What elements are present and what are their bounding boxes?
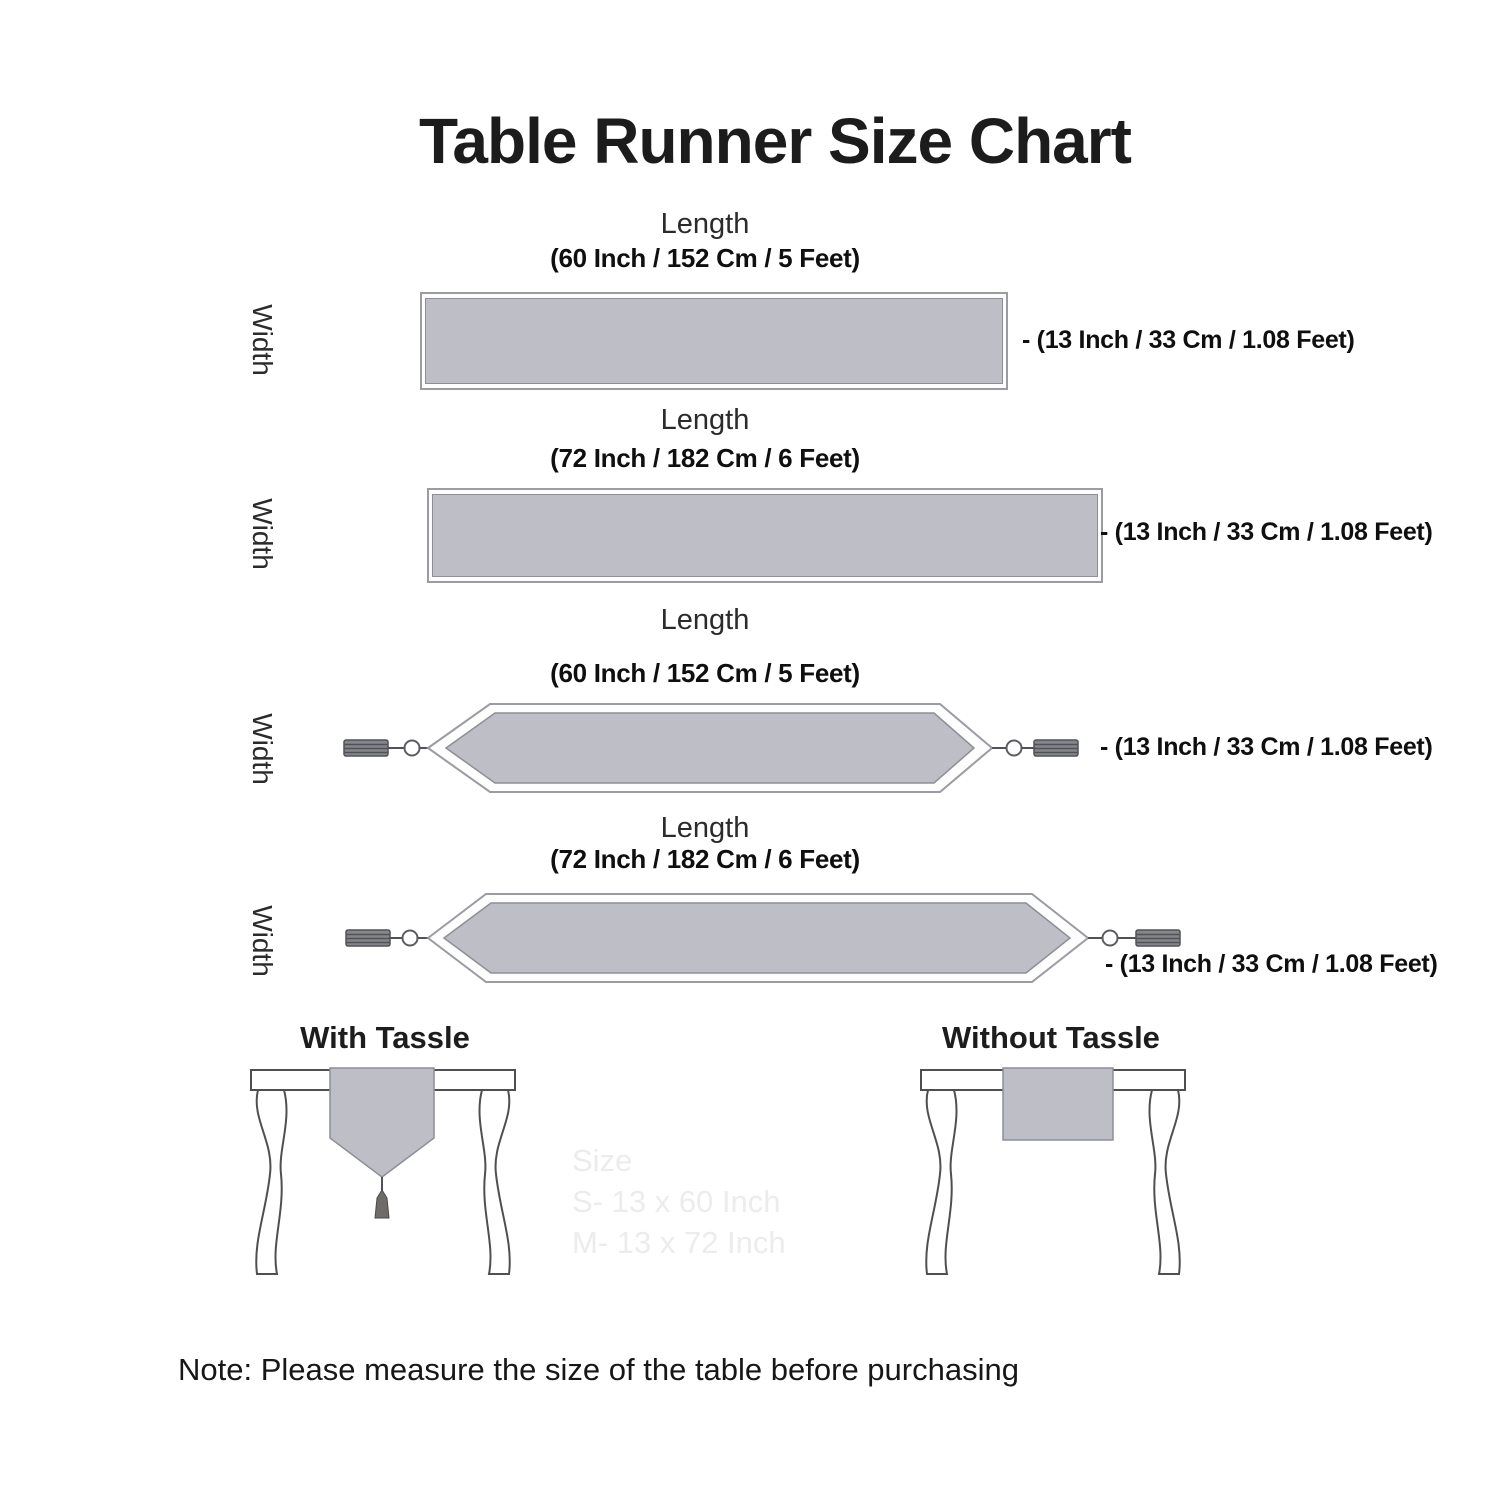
- table-runner-size-chart: Table Runner Size Chart Length (60 Inch …: [0, 0, 1500, 1500]
- runner-4-width-size: - (13 Inch / 33 Cm / 1.08 Feet): [1105, 950, 1438, 979]
- straight-runner: [1003, 1068, 1113, 1140]
- table-leg: [479, 1090, 509, 1274]
- runner-1-diagram: [420, 292, 1008, 390]
- runner-4-length-label: Length: [355, 812, 1055, 845]
- watermark-text: Size S- 13 x 60 Inch M- 13 x 72 Inch: [572, 1140, 786, 1263]
- table-leg: [1149, 1090, 1179, 1274]
- runner-2-width-label: Width: [246, 479, 278, 589]
- tassel-icon: [1034, 740, 1078, 756]
- runner-3-fabric: [446, 713, 974, 783]
- tassel-ring-icon: [1007, 741, 1022, 756]
- runner-2-length-size: (72 Inch / 182 Cm / 6 Feet): [355, 443, 1055, 474]
- runner-3-width-label: Width: [246, 694, 278, 804]
- tassel-ring-icon: [405, 741, 420, 756]
- runner-1-width-size: - (13 Inch / 33 Cm / 1.08 Feet): [1022, 326, 1355, 355]
- runner-4-diagram: [340, 890, 1185, 986]
- runner-1-length-size: (60 Inch / 152 Cm / 5 Feet): [355, 243, 1055, 274]
- runner-2-width-size: - (13 Inch / 33 Cm / 1.08 Feet): [1100, 518, 1433, 547]
- runner-1-width-label: Width: [246, 285, 278, 395]
- runner-1-length-label: Length: [355, 208, 1055, 241]
- runner-3-length-label: Length: [355, 604, 1055, 637]
- page-title: Table Runner Size Chart: [40, 104, 1500, 178]
- table-with-tassel-illustration: [248, 1060, 518, 1300]
- runner-4-fabric: [444, 903, 1070, 973]
- table-without-tassel-illustration: [918, 1060, 1188, 1295]
- tassel-ring-icon: [403, 931, 418, 946]
- table-leg: [256, 1090, 286, 1274]
- table-leg: [926, 1090, 956, 1274]
- with-tassel-heading: With Tassle: [225, 1020, 545, 1056]
- hanging-tassel-icon: [375, 1190, 389, 1218]
- watermark-line: M- 13 x 72 Inch: [572, 1222, 786, 1263]
- runner-3-length-size: (60 Inch / 152 Cm / 5 Feet): [355, 658, 1055, 689]
- tassel-icon: [1136, 930, 1180, 946]
- watermark-line: Size: [572, 1140, 786, 1181]
- runner-2-diagram: [427, 488, 1103, 583]
- runner-2-length-label: Length: [355, 404, 1055, 437]
- watermark-line: S- 13 x 60 Inch: [572, 1181, 786, 1222]
- runner-3-width-size: - (13 Inch / 33 Cm / 1.08 Feet): [1100, 733, 1433, 762]
- tassel-icon: [346, 930, 390, 946]
- runner-2-fabric: [432, 494, 1098, 577]
- tassel-icon: [344, 740, 388, 756]
- without-tassel-heading: Without Tassle: [891, 1020, 1211, 1056]
- runner-4-length-size: (72 Inch / 182 Cm / 6 Feet): [355, 844, 1055, 875]
- runner-1-fabric: [425, 298, 1003, 384]
- pennant-runner: [330, 1068, 434, 1177]
- runner-4-width-label: Width: [246, 886, 278, 996]
- tassel-ring-icon: [1103, 931, 1118, 946]
- note-text: Note: Please measure the size of the tab…: [178, 1352, 1019, 1388]
- runner-3-diagram: [340, 700, 1090, 796]
